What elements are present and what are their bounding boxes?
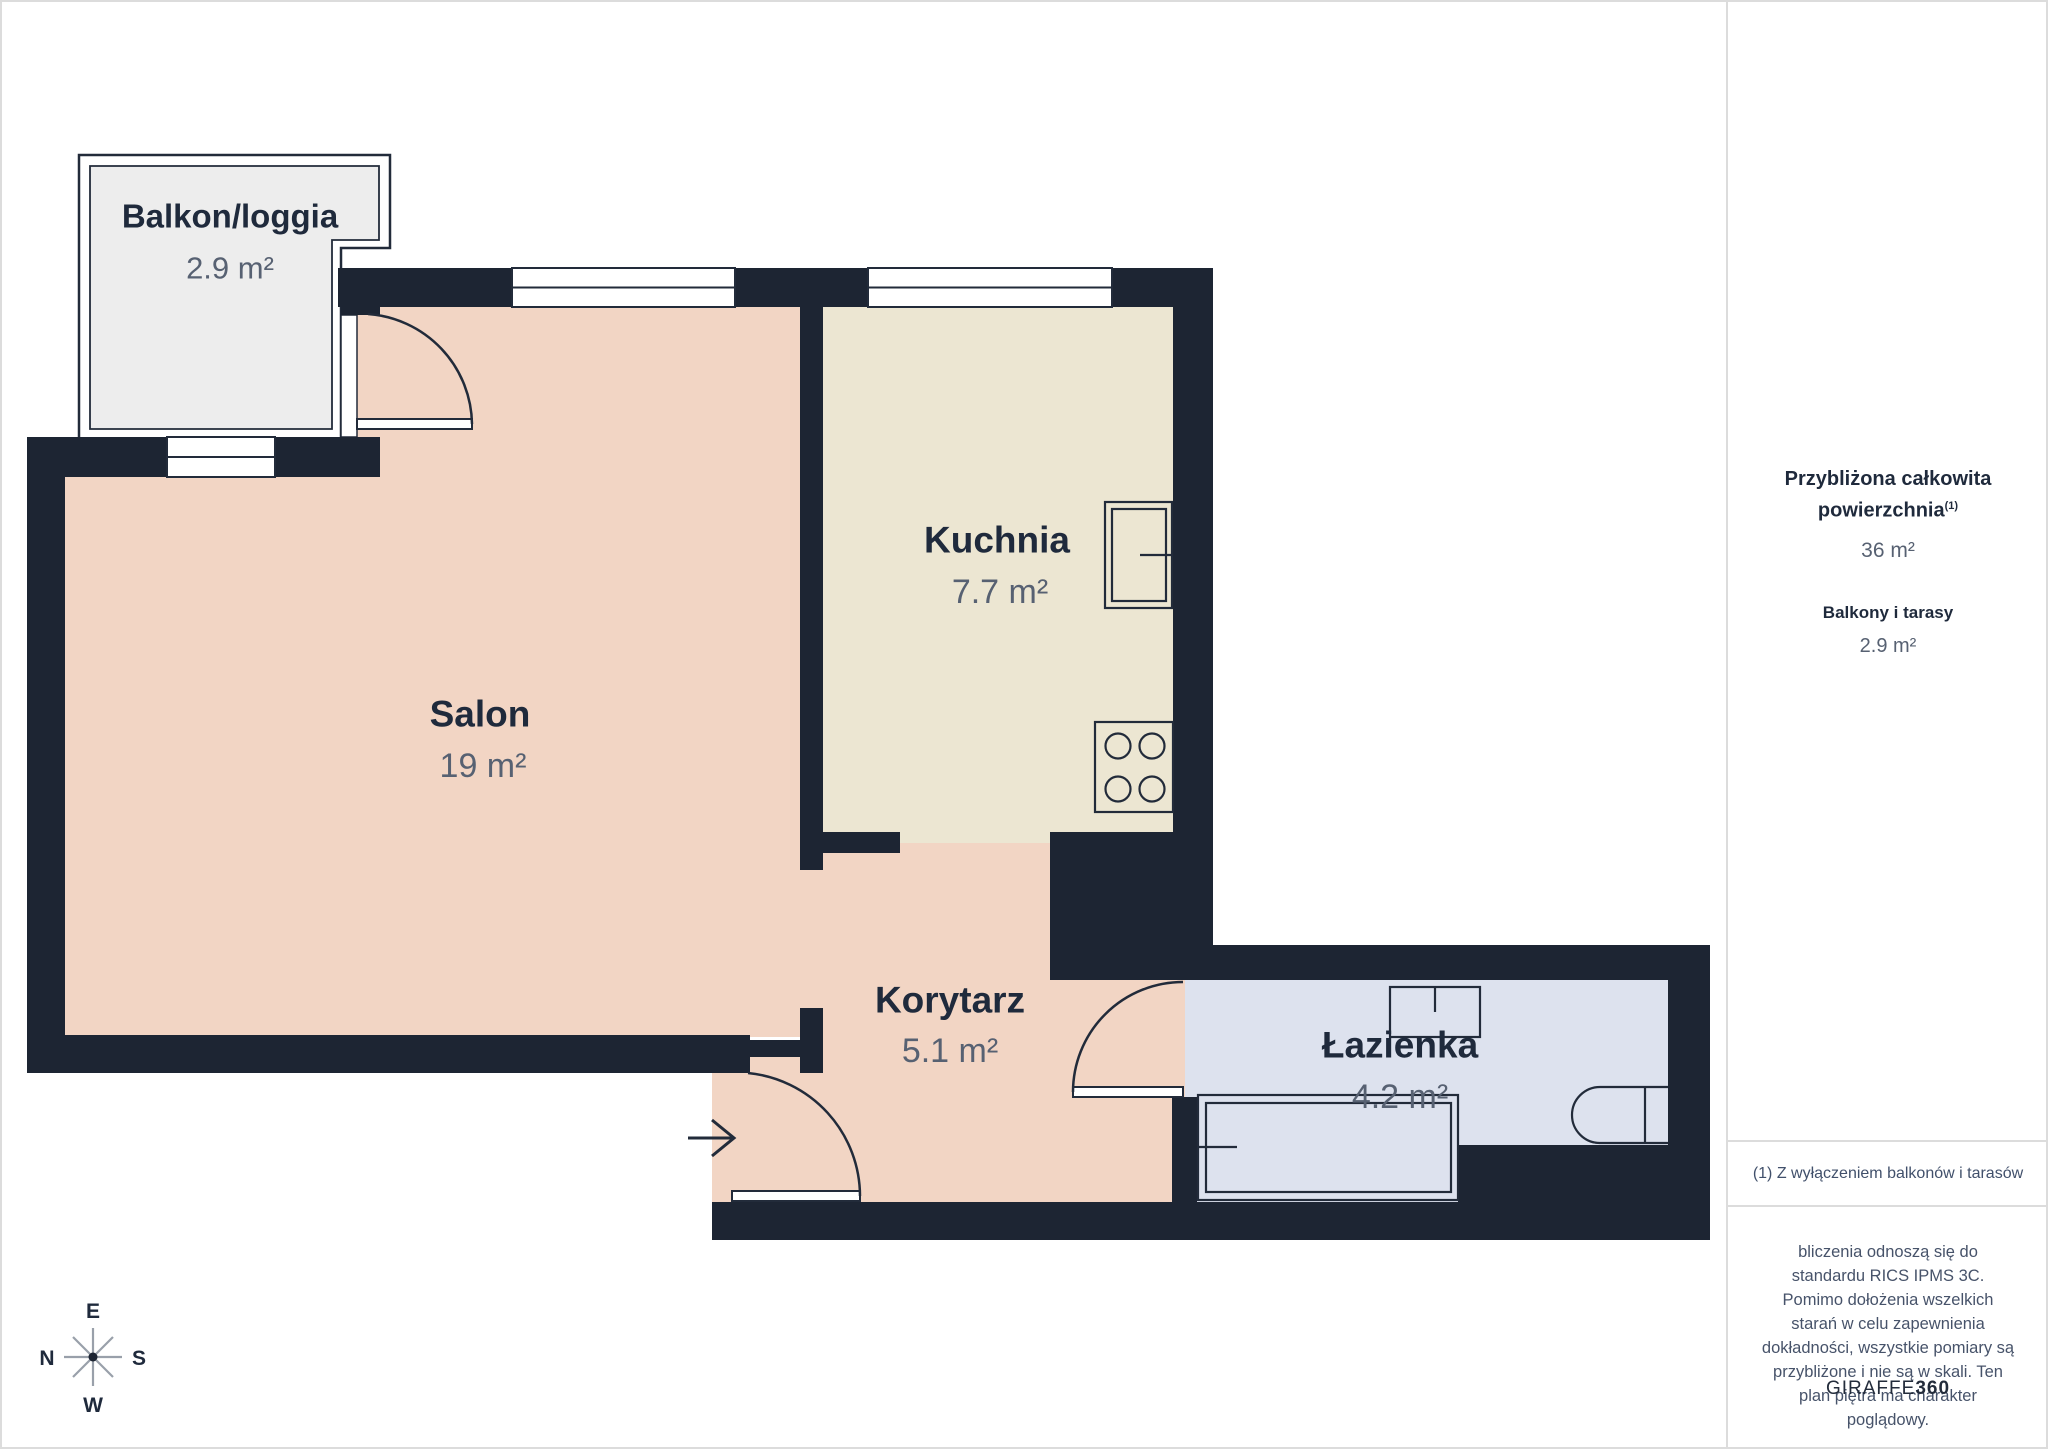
summary-title-line1: Przybliżona całkowita (1728, 466, 2048, 493)
logo-suffix: 360 (1915, 1378, 1950, 1399)
compass-n-label: N (39, 1347, 54, 1370)
footnote-text: (1) Z wyłączeniem balkonów i tarasów (1753, 1165, 2023, 1183)
floorplan-page: E N S W Balkon/loggia 2.9 m² Salon 19 m²… (0, 0, 2048, 1449)
room-area-salon: 19 m² (440, 749, 527, 783)
compass-rose: E N S W (39, 1300, 146, 1417)
room-label-kuchnia: Kuchnia (924, 522, 1070, 559)
room-area-lazienka: 4.2 m² (1352, 1080, 1448, 1114)
room-area-kuchnia: 7.7 m² (952, 575, 1048, 609)
disclaimer-text: bliczenia odnoszą się do standardu RICS … (1760, 1240, 2016, 1432)
footnote-box: (1) Z wyłączeniem balkonów i tarasów (1728, 1140, 2048, 1207)
room-area-korytarz: 5.1 m² (902, 1034, 998, 1068)
room-area-balkon: 2.9 m² (186, 253, 274, 284)
room-label-balkon: Balkon/loggia (122, 200, 338, 233)
room-label-lazienka: Łazienka (1322, 1027, 1478, 1064)
room-label-korytarz: Korytarz (875, 982, 1025, 1019)
total-area-value: 36 m² (1728, 539, 2048, 563)
giraffe360-logo: GIRAFFE360 (1728, 1378, 2048, 1400)
footnote-marker: (1) (1945, 500, 1958, 512)
summary-title-line2: powierzchnia(1) (1728, 493, 2048, 525)
compass-s-label: S (132, 1347, 146, 1370)
balconies-area-value: 2.9 m² (1728, 635, 2048, 658)
room-label-salon: Salon (430, 696, 531, 733)
area-summary: Przybliżona całkowita powierzchnia(1) 36… (1728, 466, 2048, 658)
logo-text: GIRAFFE (1826, 1378, 1915, 1399)
balconies-label: Balkony i tarasy (1728, 603, 2048, 623)
compass-e-label: E (86, 1300, 100, 1323)
compass-w-label: W (83, 1394, 103, 1417)
info-sidebar: Przybliżona całkowita powierzchnia(1) 36… (1726, 0, 2048, 1449)
